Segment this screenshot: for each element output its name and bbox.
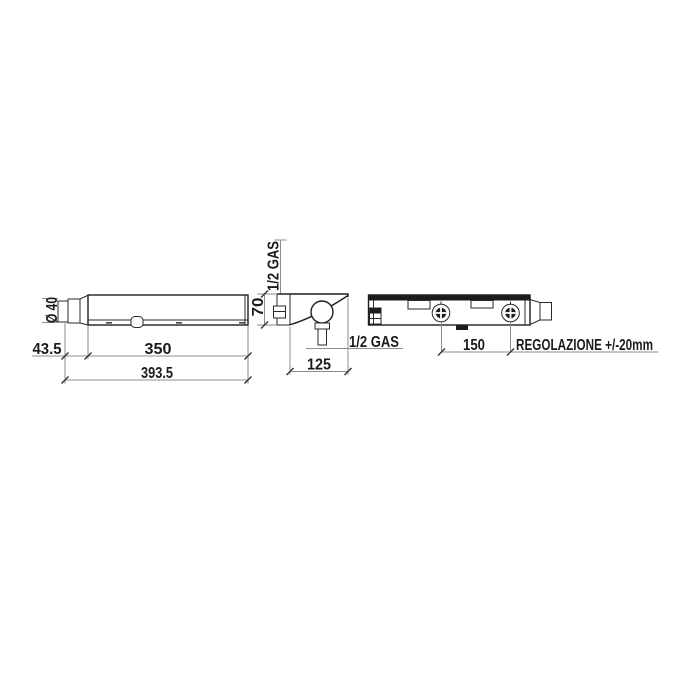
profile-body xyxy=(274,294,349,345)
front-view: Ø 40 43.5 350 393.5 xyxy=(32,295,252,384)
shower-bar-body xyxy=(88,295,248,328)
outlet-collar xyxy=(315,323,330,329)
mounting-notch-left xyxy=(408,301,430,310)
bottom-tab xyxy=(456,326,468,331)
control-knob xyxy=(311,301,333,323)
wall-bracket-end xyxy=(530,300,552,325)
body-length-label: 350 xyxy=(145,341,172,358)
top-connection-leader: 1/2 GAS xyxy=(266,240,287,294)
dim-diameter: Ø 40 xyxy=(42,297,61,323)
end-cap xyxy=(58,295,88,325)
rear-view: 150 REGOLAZIONE +/-20mm xyxy=(369,295,659,356)
mounting-notch-right xyxy=(471,301,493,309)
total-length-label: 393.5 xyxy=(141,365,173,382)
inlet-spacing-label: 150 xyxy=(463,337,485,354)
depth-label: 125 xyxy=(307,357,331,374)
left-clamp xyxy=(370,308,382,324)
rear-bar-body xyxy=(369,295,552,330)
inlet-screw-right xyxy=(502,302,520,322)
cap-offset-label: 43.5 xyxy=(33,341,62,358)
outlet-connection-label: 1/2 GAS xyxy=(349,334,399,351)
diameter-label: Ø 40 xyxy=(44,297,61,323)
adjustment-note-label: REGOLAZIONE +/-20mm xyxy=(516,337,653,354)
slider-clip xyxy=(131,317,143,328)
top-connection-label: 1/2 GAS xyxy=(266,241,283,291)
outlet-pipe xyxy=(318,329,327,345)
wall-rail-edge xyxy=(369,295,531,301)
inlet-screw-left xyxy=(432,302,450,322)
dim-row-lower: 393.5 xyxy=(62,365,252,384)
technical-drawing: Ø 40 43.5 350 393.5 1/2 GAS xyxy=(0,0,700,700)
dim-height: 70 xyxy=(250,291,277,329)
height-label: 70 xyxy=(250,297,267,316)
dim-inlet-spacing: 150 REGOLAZIONE +/-20mm xyxy=(438,322,659,356)
technical-drawing-page: Ø 40 43.5 350 393.5 1/2 GAS xyxy=(0,0,700,700)
